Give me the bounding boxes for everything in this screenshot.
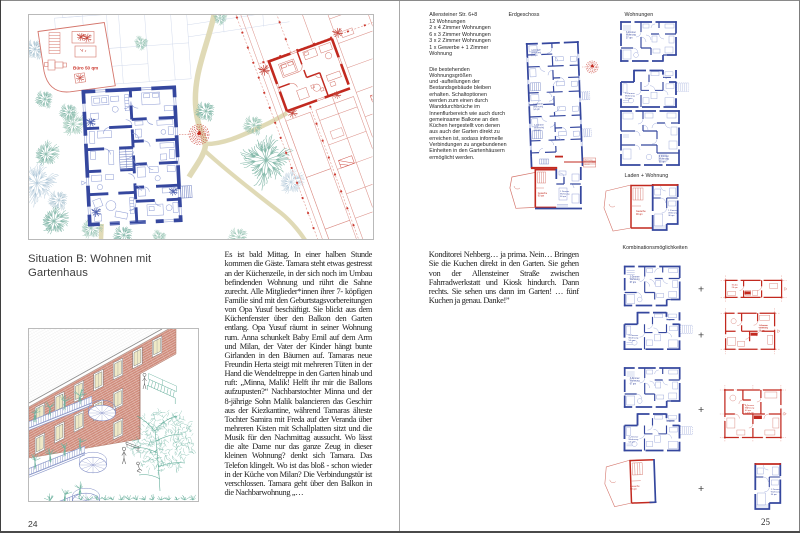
- svg-text:+: +: [698, 284, 704, 296]
- svg-text:WohnungGewerbe36+90: WohnungGewerbe36+90: [584, 159, 592, 165]
- svg-text:3 ZimmerWohnung60 qm(+20/-20): 3 ZimmerWohnung60 qm(+20/-20): [745, 404, 755, 415]
- svg-text:+: +: [698, 483, 704, 495]
- svg-text:+: +: [698, 404, 704, 416]
- svg-text:+: +: [698, 330, 704, 342]
- svg-text:Studio20 qm: Studio20 qm: [732, 283, 739, 289]
- svg-text:Büro 50 qm: Büro 50 qm: [73, 65, 98, 70]
